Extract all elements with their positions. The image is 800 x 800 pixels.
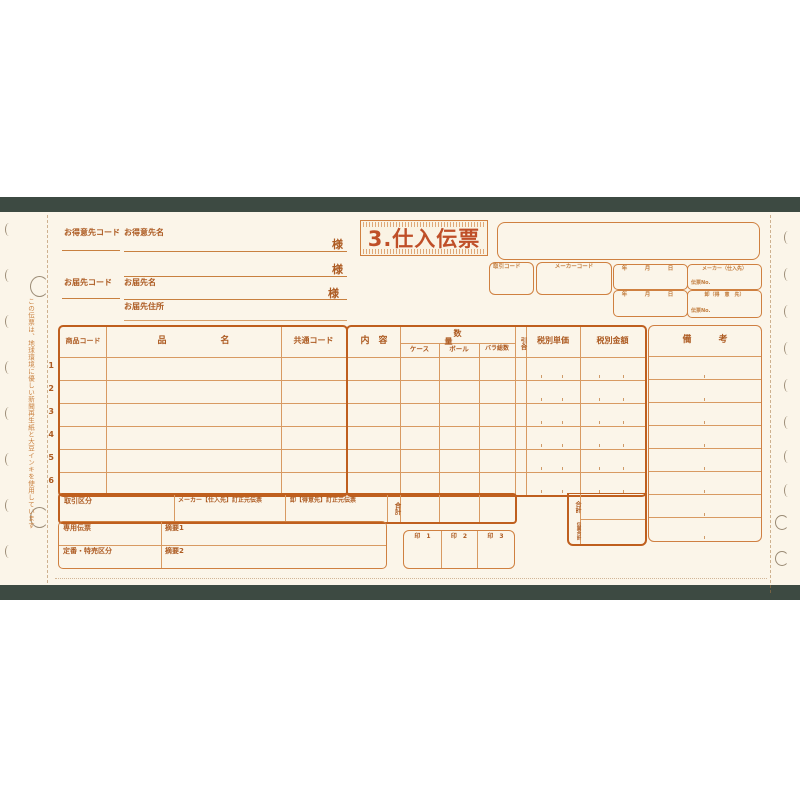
sprocket-hole-icon [5,269,13,282]
date-box-1: 年 月 日 [613,264,688,290]
delivery-name-label: お届先名 [124,279,156,287]
amount-tick-marks [578,355,642,493]
date-label: 年 月 日 [614,267,687,273]
customer-name-line2 [124,276,347,277]
col-unit-price: 税別単価 [526,337,580,345]
col-case: ケース [400,346,439,353]
item-table-left: 商品コード 品 名 共通コード [58,325,348,497]
maker-party-box: メーカー（仕入先） 伝票No. [687,264,762,290]
sprocket-hole-icon [5,499,13,512]
row-number: 2 [40,385,54,393]
honorific-sama: 様 [332,264,343,275]
delivery-code-line [62,298,120,299]
binder-punch-hole-icon [30,276,49,297]
sprocket-hole-icon [784,342,792,355]
col-item-name: 品 名 [106,337,281,346]
wholesaler-correction-label: 卸【得意先】訂正元伝票 [290,498,356,504]
amount-total-box: 合計 伝票合計 [567,493,647,546]
sprocket-hole-icon [784,416,792,429]
stamp-3-label: 印 3 [477,534,514,540]
left-perforation-line [47,215,48,583]
row-number: 4 [40,431,54,439]
maker-party-label: メーカー（仕入先） [688,267,761,272]
slip-title: 3.仕入伝票 [368,223,481,253]
col-hikiai: 引合 [515,331,526,355]
sprocket-hole-icon [5,223,13,236]
sprocket-hole-icon [784,484,792,497]
col-amount: 税別金額 [580,337,645,345]
col-bulk-total: バラ総数 [479,346,515,352]
maker-code-label: メーカーコード [537,265,611,271]
transaction-code-box: 取引コード [489,262,534,295]
col-ball: ボール [439,346,479,353]
maker-slip-no-label: 伝票No. [691,281,711,286]
delivery-name-line [124,299,347,300]
summary2-label: 摘要2 [165,548,184,555]
eco-note: この伝票は、地球環境に優しい新聞再生紙と大豆インキを使用しています [27,298,34,548]
customer-name-line1 [124,251,347,252]
bottom-perforation-line [55,578,767,579]
footer-left-box: 取引区分 メーカー【仕入先】訂正元伝票 卸【得意先】訂正元伝票 合計 [58,493,517,524]
row-number: 3 [40,408,54,416]
punch-hole-icon [775,551,789,566]
summary-box: 専用伝票 摘要1 定番・特売区分 摘要2 [58,521,387,569]
delivery-address-line [124,320,347,321]
photo-background-top [0,197,800,212]
regular-special-class-label: 定番・特売区分 [63,548,112,555]
sprocket-hole-icon [5,545,13,558]
col-contents: 内 容 [348,337,400,346]
date-label: 年 月 日 [614,293,687,299]
wholesaler-slip-no-label: 伝票No. [691,309,711,314]
right-perforation-line [770,215,771,593]
header-blank-box [497,222,760,260]
summary1-label: 摘要1 [165,525,184,532]
transaction-class-label: 取引区分 [64,498,92,505]
delivery-code-label: お届先コード [64,279,112,287]
sprocket-hole-icon [5,453,13,466]
slip-total-label: 伝票合計 [569,520,580,542]
sprocket-hole-icon [784,379,792,392]
transaction-code-label: 取引コード [493,265,521,271]
sprocket-hole-icon [5,315,13,328]
sprocket-hole-icon [784,268,792,281]
row-number: 1 [40,362,54,370]
customer-code-label: お得意先コード [64,229,120,237]
col-common-code: 共通コード [281,337,346,345]
stamp-boxes: 印 1 印 2 印 3 [403,530,515,569]
delivery-address-label: お届先住所 [124,303,164,311]
punch-hole-icon [775,515,789,530]
col-remarks: 備 考 [649,336,761,345]
sprocket-hole-icon [784,305,792,318]
dedicated-slip-label: 専用伝票 [63,525,91,532]
stamp-2-label: 印 2 [441,534,477,540]
customer-code-line [62,250,120,251]
col-quantity: 数 量 [400,330,515,346]
customer-name-label: お得意先名 [124,229,164,237]
sprocket-hole-icon [5,361,13,374]
row-number: 5 [40,454,54,462]
sprocket-hole-icon [784,231,792,244]
remarks-tick-marks [648,355,760,539]
wholesaler-party-label: 卸（得 意 先） [688,293,761,298]
quantity-total-label: 合計 [387,497,400,519]
wholesaler-party-box: 卸（得 意 先） 伝票No. [687,290,762,318]
purchase-slip-photo: この伝票は、地球環境に優しい新聞再生紙と大豆インキを使用しています お得意先コー… [0,0,800,800]
honorific-sama: 様 [328,288,339,299]
sprocket-hole-icon [784,450,792,463]
sprocket-hole-icon [5,407,13,420]
honorific-sama: 様 [332,239,343,250]
amount-total-label: 合計 [569,496,580,517]
maker-correction-label: メーカー【仕入先】訂正元伝票 [178,498,262,504]
photo-background-bottom [0,585,800,600]
maker-code-box: メーカーコード [536,262,612,295]
date-box-2: 年 月 日 [613,290,688,317]
unit-price-tick-marks [524,355,578,493]
stamp-1-label: 印 1 [404,534,441,540]
slip-title-box: 3.仕入伝票 [360,220,488,256]
col-product-code: 商品コード [60,338,106,345]
row-number: 6 [40,477,54,485]
